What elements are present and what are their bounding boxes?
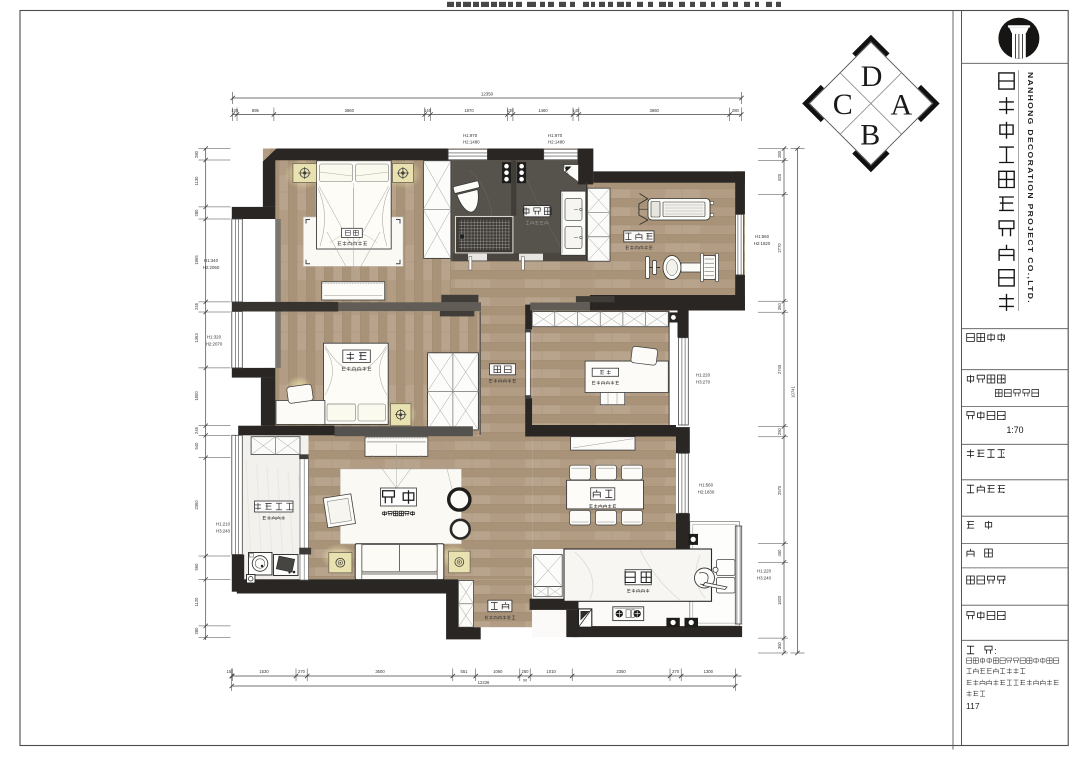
svg-text:H1:970: H1:970	[548, 133, 563, 138]
svg-text:551: 551	[461, 669, 469, 674]
svg-text::: :	[1002, 612, 1005, 622]
svg-text:H2:1820: H2:1820	[754, 241, 771, 246]
svg-text:H2:2070: H2:2070	[206, 342, 223, 347]
svg-text:H1:340: H1:340	[204, 258, 219, 263]
svg-text:350: 350	[777, 303, 782, 311]
svg-text:A: A	[890, 89, 912, 122]
svg-text:H1:560: H1:560	[755, 234, 770, 239]
svg-text:895: 895	[252, 108, 260, 113]
svg-text:1965: 1965	[194, 255, 199, 265]
svg-text:2770: 2770	[777, 243, 782, 253]
svg-text:H1:320: H1:320	[207, 335, 222, 340]
svg-text:15: 15	[227, 669, 232, 674]
svg-text:H1:560: H1:560	[699, 483, 714, 488]
svg-text:H1:210: H1:210	[216, 522, 231, 527]
svg-text:246: 246	[194, 426, 199, 434]
svg-text:270: 270	[672, 669, 680, 674]
svg-text:1460: 1460	[538, 108, 548, 113]
svg-text:1300: 1300	[704, 669, 714, 674]
svg-text:105: 105	[231, 108, 239, 113]
svg-text:2350: 2350	[616, 669, 626, 674]
svg-text:117: 117	[966, 701, 980, 711]
svg-text:H3:240: H3:240	[216, 529, 231, 534]
svg-text:1:70: 1:70	[1006, 425, 1023, 435]
svg-text:1060: 1060	[493, 669, 503, 674]
svg-text::: :	[1002, 576, 1005, 586]
svg-text:C: C	[833, 88, 853, 121]
svg-text:250: 250	[777, 427, 782, 435]
svg-text:820: 820	[777, 173, 782, 181]
svg-text::: :	[1002, 485, 1005, 495]
svg-text:1010: 1010	[547, 669, 557, 674]
svg-text:280: 280	[777, 150, 782, 158]
svg-text:280: 280	[194, 209, 199, 217]
svg-text:2570: 2570	[777, 485, 782, 495]
svg-text:H3:240: H3:240	[757, 576, 772, 581]
svg-text:H1:220: H1:220	[696, 373, 711, 378]
svg-text:245: 245	[194, 302, 199, 310]
svg-text:H1:970: H1:970	[463, 133, 478, 138]
svg-text:270: 270	[298, 669, 306, 674]
svg-text:H2:1830: H2:1830	[698, 490, 715, 495]
svg-text:280: 280	[194, 627, 199, 635]
svg-text:1800: 1800	[194, 391, 199, 401]
svg-text:10741: 10741	[791, 386, 796, 398]
svg-text:12350: 12350	[481, 92, 494, 97]
svg-text:90: 90	[523, 679, 527, 683]
svg-text:1130: 1130	[194, 176, 199, 186]
svg-text:3500: 3500	[375, 669, 385, 674]
svg-text:B: B	[860, 119, 880, 152]
svg-text::: :	[994, 646, 997, 656]
svg-text:3660: 3660	[345, 108, 355, 113]
svg-text:D: D	[861, 60, 883, 93]
svg-text:560: 560	[194, 563, 199, 571]
svg-text:1530: 1530	[259, 669, 269, 674]
svg-text:2745: 2745	[777, 364, 782, 374]
svg-text:1120: 1120	[194, 597, 199, 607]
svg-text:H2:1480: H2:1480	[463, 140, 480, 145]
svg-text:1363: 1363	[194, 333, 199, 343]
svg-text:H2:2060: H2:2060	[203, 265, 220, 270]
svg-text:140: 140	[572, 108, 580, 113]
svg-text:NANHONG DECORATION PROJECT CO.: NANHONG DECORATION PROJECT CO.,LTD.	[1026, 72, 1033, 304]
svg-text:450: 450	[777, 549, 782, 557]
svg-text:H2:1480: H2:1480	[548, 140, 565, 145]
svg-text:H3:270: H3:270	[696, 380, 711, 385]
svg-text:130: 130	[507, 108, 515, 113]
svg-text:1820: 1820	[777, 595, 782, 605]
svg-text:3660: 3660	[650, 108, 660, 113]
svg-text:1870: 1870	[464, 108, 474, 113]
svg-text::: :	[1002, 412, 1005, 422]
svg-text:540: 540	[194, 442, 199, 450]
svg-text:H1:220: H1:220	[757, 569, 772, 574]
svg-text::: :	[1002, 375, 1005, 385]
svg-text:250: 250	[522, 669, 530, 674]
svg-text:140: 140	[424, 108, 432, 113]
svg-text:12236: 12236	[478, 680, 490, 685]
svg-text::: :	[1002, 450, 1005, 460]
svg-text:280: 280	[732, 108, 740, 113]
svg-text:280: 280	[194, 150, 199, 158]
svg-text:360: 360	[777, 641, 782, 649]
svg-text::: :	[1002, 334, 1005, 344]
svg-text:2360: 2360	[194, 500, 199, 510]
